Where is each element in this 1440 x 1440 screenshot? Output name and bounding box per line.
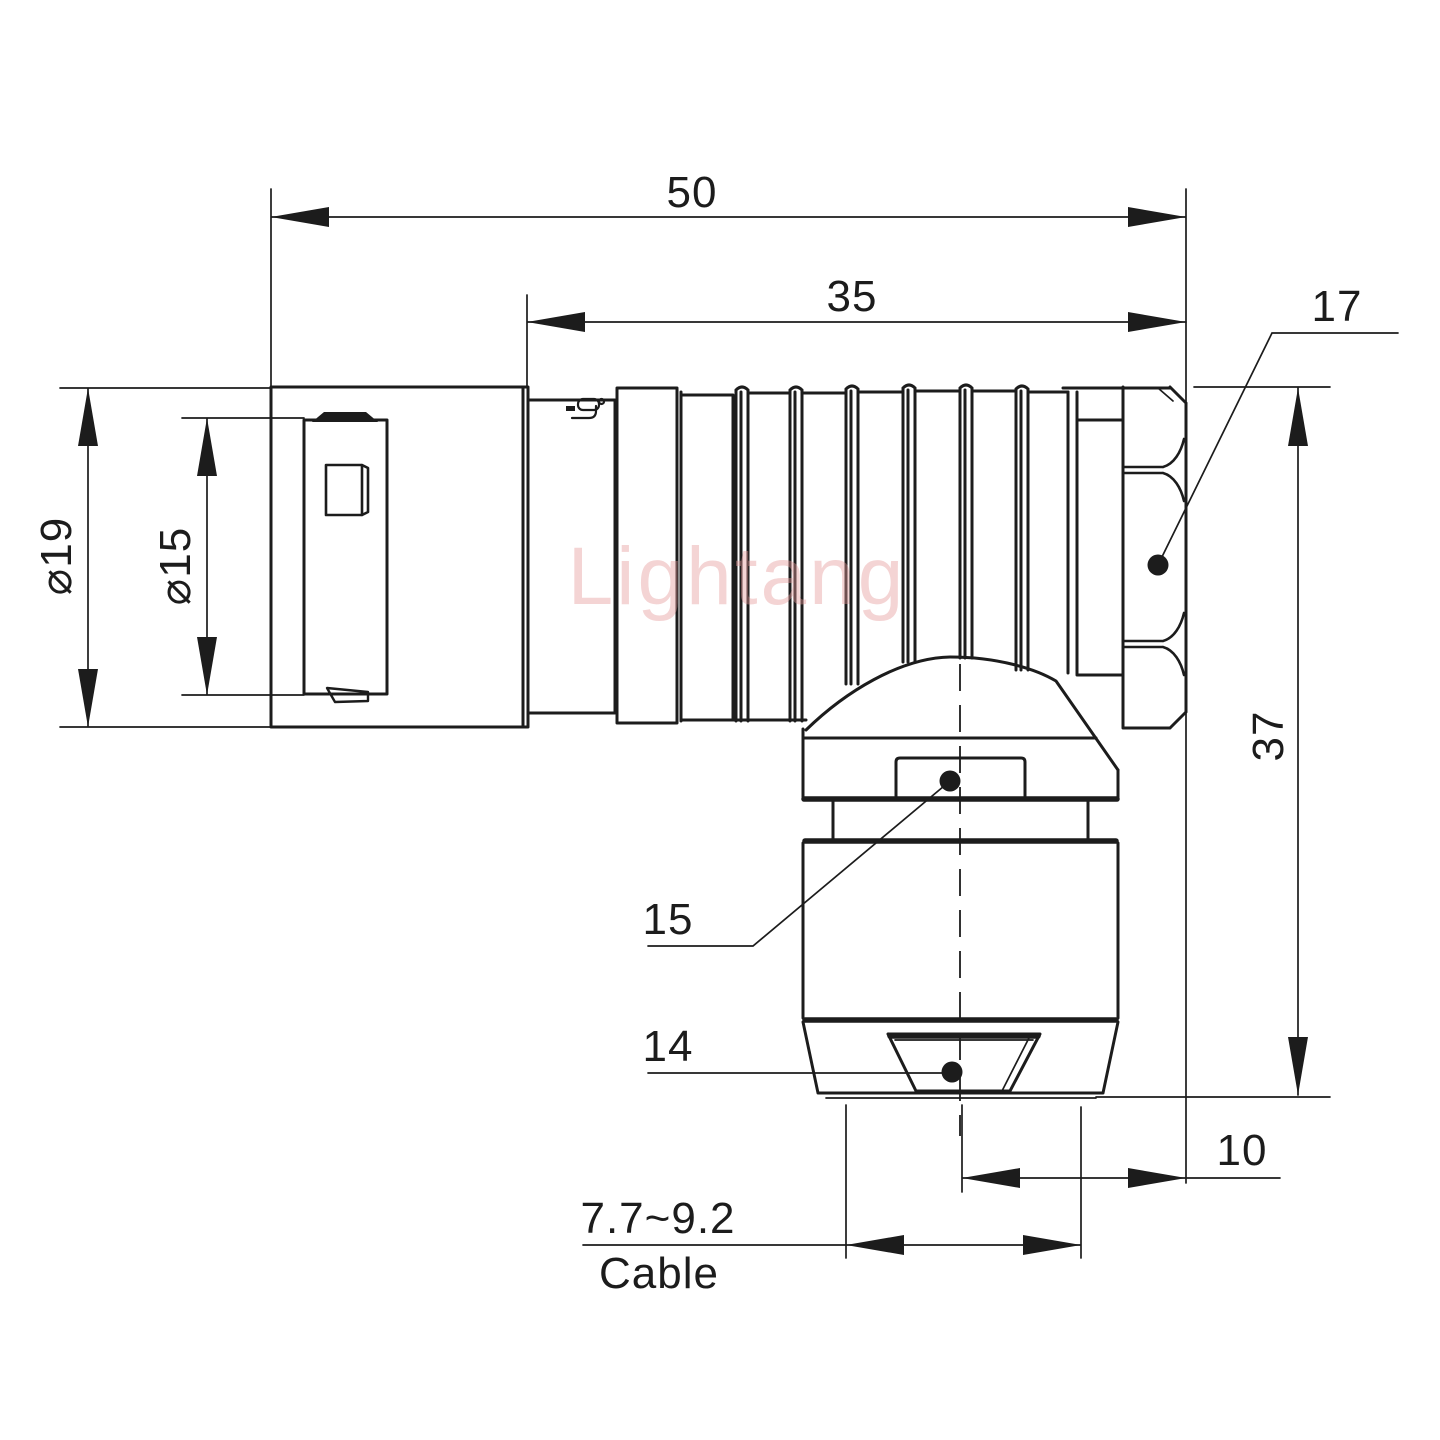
section-c — [681, 395, 806, 720]
technical-drawing-page: Lightang 50 35 17 ⌀19 ⌀15 37 15 14 10 7.… — [0, 0, 1440, 1440]
dim-50-lines — [271, 189, 1186, 1183]
leader-dot-14 — [942, 1062, 963, 1083]
sleeve-outline — [304, 420, 387, 694]
collar — [1068, 392, 1123, 675]
dim-outer-diameter-label: ⌀19 — [34, 476, 80, 636]
dim-offset-label: 10 — [1192, 1128, 1292, 1174]
dim-inner-diameter-label: ⌀15 — [153, 486, 199, 646]
rib-6 — [1016, 386, 1028, 670]
dim-hex-width-label: 17 — [1287, 284, 1387, 330]
connector-outline — [271, 385, 1186, 1093]
elbow-dome — [806, 657, 1118, 770]
dim-collet-label: 14 — [618, 1024, 718, 1070]
leader-dot-15 — [940, 771, 961, 792]
section-b — [617, 388, 681, 723]
fine-part-lines — [826, 388, 1173, 1098]
dim-overall-length-label: 50 — [642, 170, 742, 216]
section-a — [528, 400, 615, 713]
dim-37-lines — [1096, 387, 1330, 1097]
leader-dot-17 — [1148, 555, 1169, 576]
rib-5 — [960, 385, 972, 658]
barrel-outline — [271, 387, 528, 727]
engraving-marks — [572, 399, 604, 418]
dim-total-height-label: 37 — [1246, 656, 1292, 816]
rib-2 — [790, 387, 802, 721]
hex-nut — [1063, 387, 1186, 728]
leader-17 — [1158, 333, 1398, 565]
sleeve-top-latch — [312, 412, 378, 422]
engraving-dash — [566, 406, 575, 411]
cable-text-label: Cable — [559, 1251, 759, 1297]
dim-body-length-label: 35 — [802, 274, 902, 320]
sleeve-window — [326, 465, 368, 515]
rib-4 — [903, 385, 915, 662]
dim-cable-range-label: 7.7~9.2 — [558, 1196, 758, 1242]
rib-1 — [736, 387, 748, 721]
dim-gland-nut-label: 15 — [618, 897, 718, 943]
rib-3 — [846, 386, 858, 684]
dimension-lines — [60, 189, 1398, 1258]
